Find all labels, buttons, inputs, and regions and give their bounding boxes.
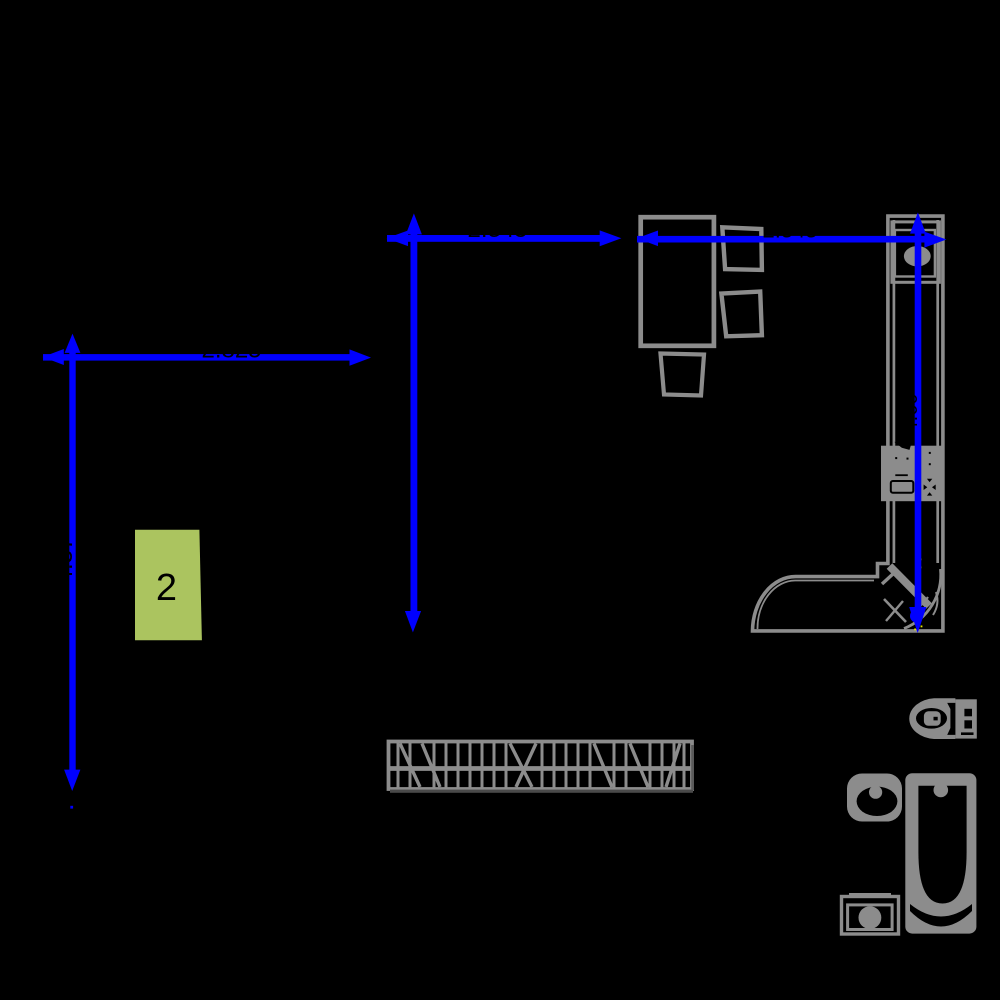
- svg-text:2.345: 2.345: [467, 216, 527, 243]
- svg-text:2.545: 2.545: [762, 218, 817, 243]
- svg-text:4.60: 4.60: [900, 394, 922, 433]
- svg-text:2.825: 2.825: [201, 336, 261, 363]
- svg-text:2: 2: [156, 567, 177, 609]
- svg-text:4.37: 4.37: [51, 537, 78, 584]
